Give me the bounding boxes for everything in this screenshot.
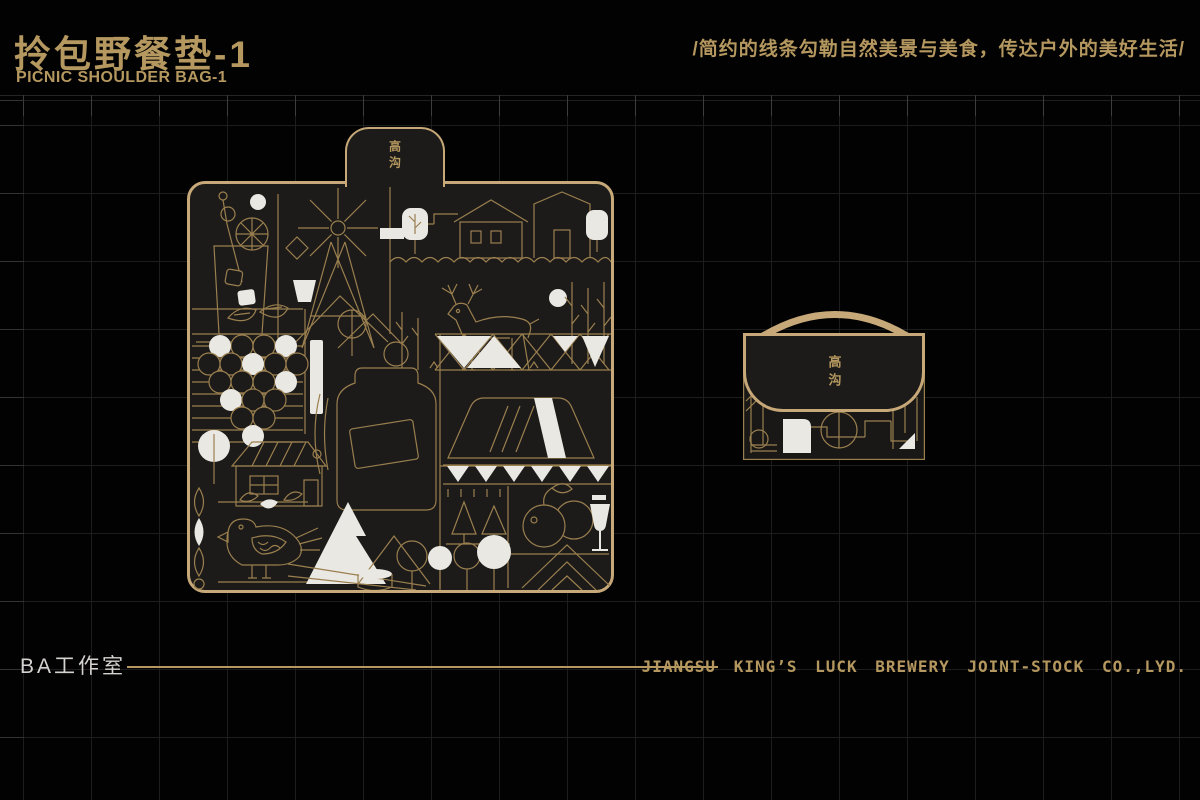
bottle-illustration — [310, 310, 436, 510]
diamond-band — [435, 334, 611, 370]
divider-line — [127, 666, 718, 668]
mat-tab-label: 高沟 — [387, 140, 404, 187]
village-illustration — [380, 192, 611, 262]
drink-illustration — [214, 192, 268, 334]
studio-name: BA工作室 — [20, 650, 126, 680]
bag-flap: 高沟 — [743, 333, 925, 412]
fruit-illustration — [523, 484, 593, 547]
top-ruler-ticks — [0, 95, 1200, 116]
company-name: JIANGSU KING’S LUCK BREWERY JOINT-STOCK … — [642, 657, 1187, 676]
bag-handle — [751, 307, 919, 336]
grapes-illustration — [192, 305, 308, 447]
bag-flap-label: 高沟 — [825, 355, 844, 391]
mountain-illustration — [288, 502, 430, 590]
leaf-column — [194, 488, 308, 589]
rocks-waterfall-illustration — [440, 398, 611, 466]
mat-illustration — [190, 184, 611, 590]
windmill-illustration — [286, 188, 402, 348]
left-ruler-ticks — [0, 95, 24, 800]
picnic-mat-flat — [187, 181, 614, 593]
page-subtitle: PICNIC SHOULDER BAG-1 — [16, 69, 227, 87]
house-illustration — [198, 430, 326, 506]
chevron-pattern — [522, 545, 610, 590]
top-ruler-line — [0, 95, 1200, 96]
design-slogan: /简约的线条勾勒自然美景与美食，传达户外的美好生活/ — [692, 34, 1185, 61]
triangle-band — [443, 465, 611, 497]
mat-tab: 高沟 — [345, 127, 445, 187]
design-canvas: 拎包野餐垫-1 PICNIC SHOULDER BAG-1 /简约的线条勾勒自然… — [0, 0, 1200, 800]
